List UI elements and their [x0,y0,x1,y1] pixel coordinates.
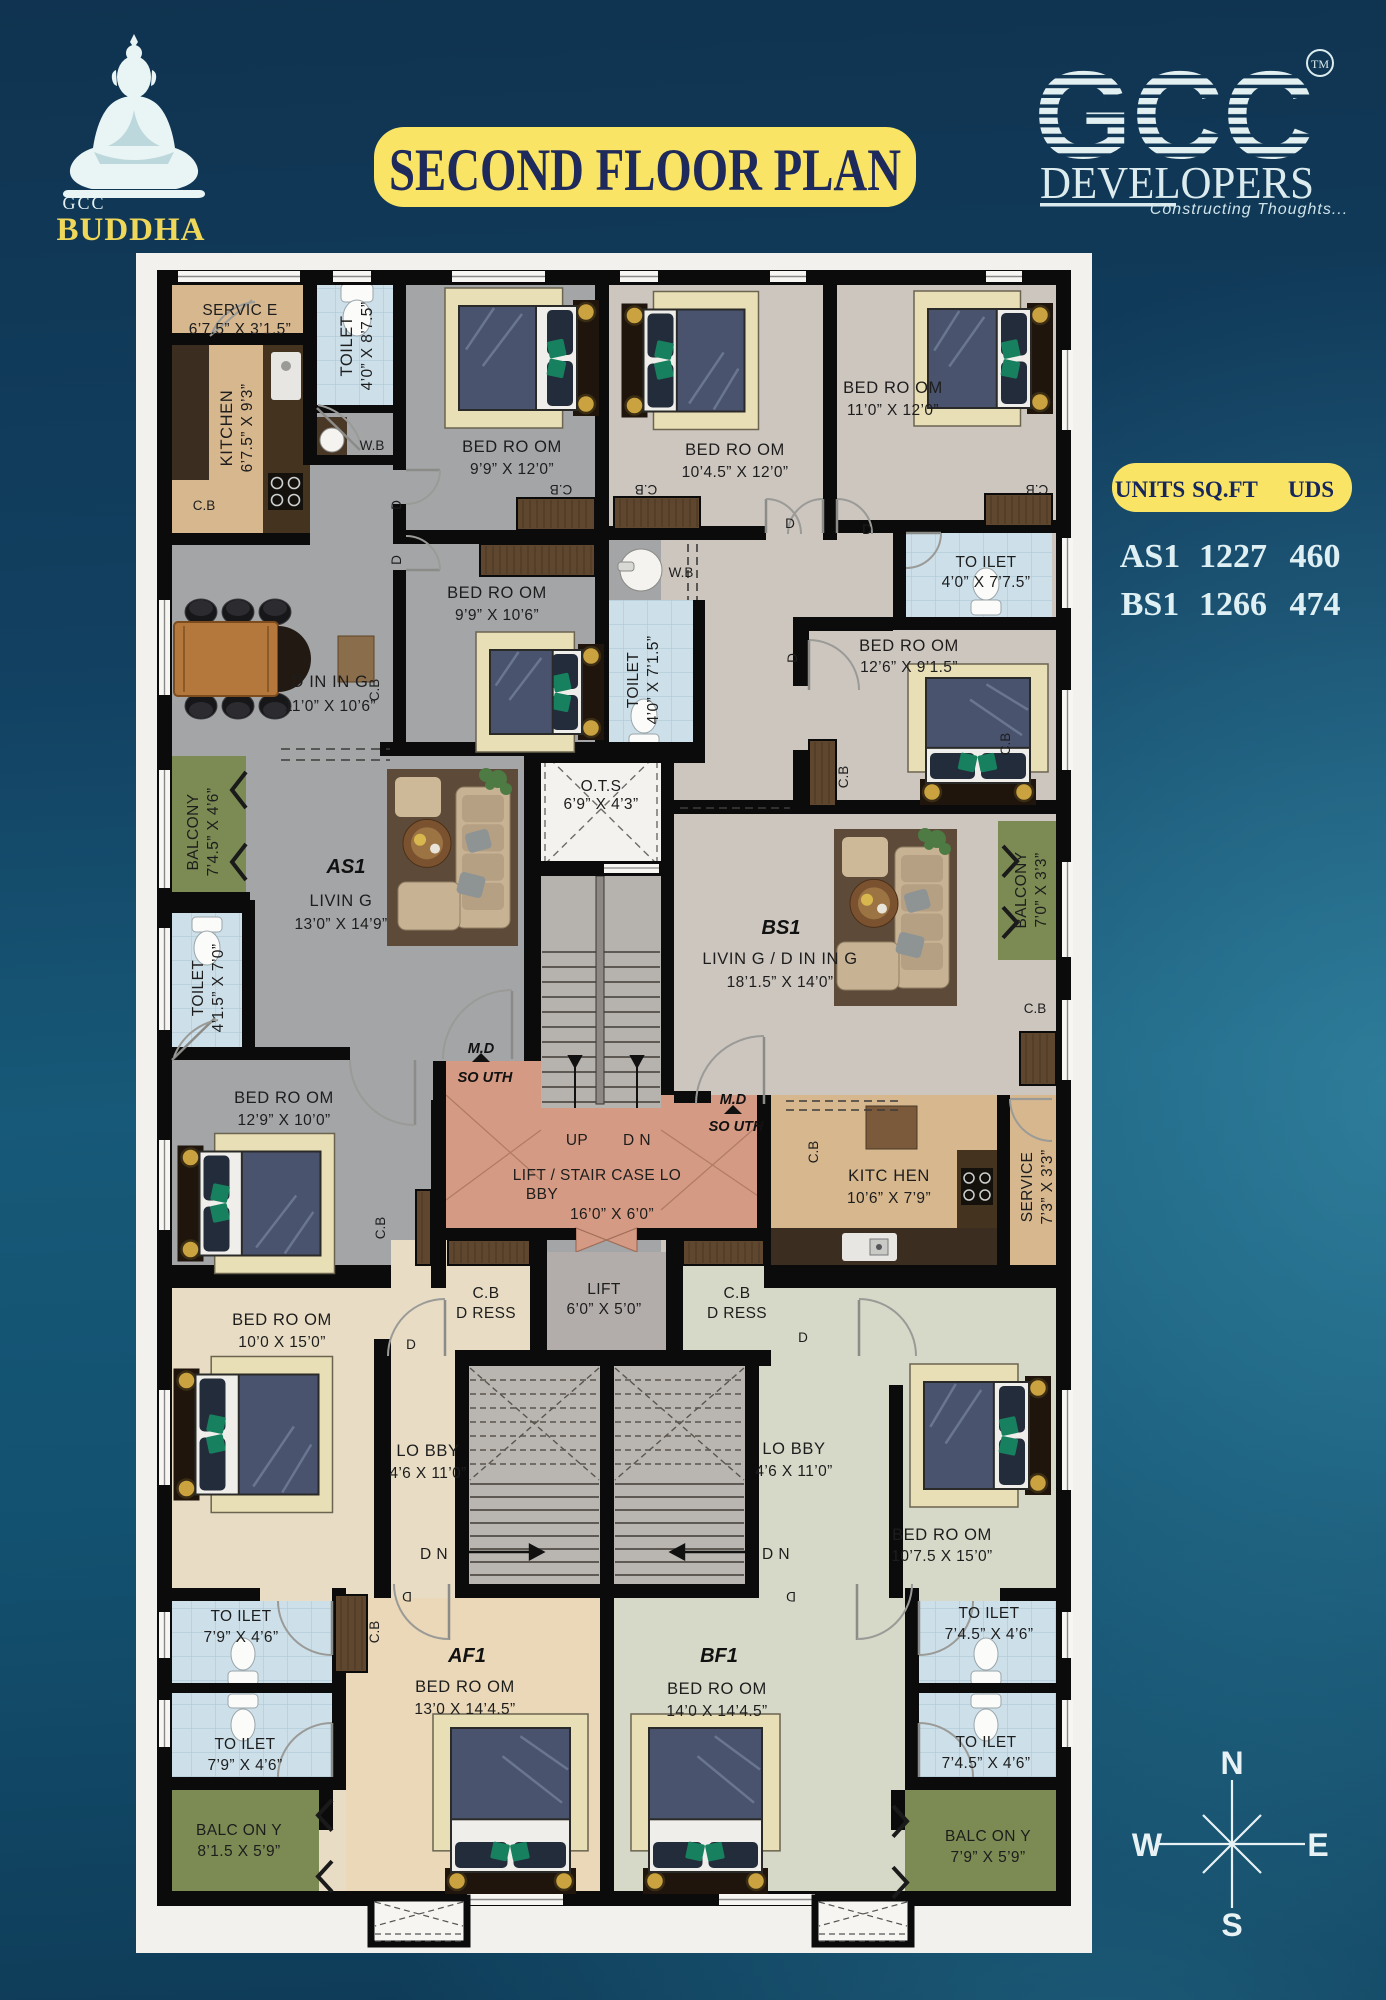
svg-text:BALCONY: BALCONY [185,794,202,871]
svg-text:D: D [389,500,404,510]
svg-text:TOILET: TOILET [625,652,642,709]
svg-text:BED RO OM: BED RO OM [232,1311,332,1329]
svg-text:LIFT: LIFT [587,1281,621,1298]
svg-text:D: D [389,555,404,565]
svg-text:BS1: BS1 [762,917,801,939]
svg-text:6’9” X 4’3”: 6’9” X 4’3” [563,796,638,813]
svg-text:W: W [1132,1827,1163,1863]
svg-text:4’6 X 11’0”: 4’6 X 11’0” [389,1465,466,1482]
svg-text:10’0 X 15’0”: 10’0 X 15’0” [238,1334,326,1351]
svg-text:Constructing Thoughts...: Constructing Thoughts... [1150,201,1348,218]
svg-text:BED RO OM: BED RO OM [859,637,959,655]
svg-text:1227: 1227 [1199,538,1267,575]
svg-text:O.T.S: O.T.S [581,778,622,795]
svg-text:BALC ON Y: BALC ON Y [945,1828,1031,1845]
svg-text:TOILET: TOILET [338,315,356,376]
svg-text:12’6” X 9’1.5”: 12’6” X 9’1.5” [860,659,958,676]
svg-text:C.B: C.B [367,1621,382,1644]
svg-text:6’7.5” X 9’3”: 6’7.5” X 9’3” [239,384,256,473]
svg-text:7’3” X 3’3”: 7’3” X 3’3” [1039,1149,1056,1224]
svg-text:C.B: C.B [723,1285,750,1302]
svg-text:7’9” X 4’6”: 7’9” X 4’6” [203,1629,278,1646]
svg-text:C.B: C.B [550,482,573,497]
svg-text:BS1: BS1 [1121,586,1180,623]
svg-text:SECOND FLOOR PLAN: SECOND FLOOR PLAN [389,137,901,203]
svg-text:10’4.5” X 12’0”: 10’4.5” X 12’0” [682,464,789,481]
svg-text:7’4.5” X 4’6”: 7’4.5” X 4’6” [945,1626,1034,1643]
svg-text:D: D [786,1589,796,1604]
svg-text:BED RO OM: BED RO OM [667,1680,767,1698]
svg-text:E: E [1307,1827,1328,1863]
svg-text:W.B: W.B [360,438,385,453]
svg-text:BED RO OM: BED RO OM [447,584,547,602]
svg-text:BF1: BF1 [700,1645,738,1667]
svg-text:LIVIN G: LIVIN G [310,892,373,910]
svg-text:BED RO OM: BED RO OM [462,438,562,456]
svg-text:7’9” X 4’6”: 7’9” X 4’6” [207,1757,282,1774]
svg-text:BALCONY: BALCONY [1013,852,1030,929]
svg-text:N: N [1220,1745,1243,1781]
svg-text:C.B: C.B [1026,482,1049,497]
svg-text:9’9” X 12’0”: 9’9” X 12’0” [470,461,554,478]
svg-text:18’1.5” X 14’0”: 18’1.5” X 14’0” [727,974,834,991]
svg-text:16’0” X 6’0”: 16’0” X 6’0” [570,1206,654,1223]
svg-text:S: S [1221,1907,1242,1943]
svg-text:C.B: C.B [193,498,216,513]
svg-text:LO BBY: LO BBY [396,1442,459,1460]
svg-text:BED RO OM: BED RO OM [892,1526,992,1544]
svg-text:TO ILET: TO ILET [955,554,1016,571]
svg-text:12’9” X 10’0”: 12’9” X 10’0” [237,1112,330,1129]
svg-text:C.B: C.B [806,1141,821,1164]
svg-text:BBY: BBY [526,1186,558,1203]
svg-text:KITC HEN: KITC HEN [848,1167,930,1185]
svg-text:1266: 1266 [1199,586,1267,623]
svg-text:BUDDHA: BUDDHA [56,212,205,248]
svg-text:AS1: AS1 [1120,538,1180,575]
svg-text:474: 474 [1290,586,1341,623]
svg-text:TOILET: TOILET [190,960,207,1017]
svg-text:7’4.5” X 4’6”: 7’4.5” X 4’6” [205,788,222,877]
svg-text:D IN IN G: D IN IN G [292,673,369,691]
svg-text:11’0” X 10’6”: 11’0” X 10’6” [284,698,376,715]
svg-text:AF1: AF1 [447,1645,486,1667]
svg-text:BED RO OM: BED RO OM [234,1089,334,1107]
svg-text:TM: TM [1311,57,1329,71]
svg-text:SERVIC E: SERVIC E [202,302,277,319]
svg-text:UNITS: UNITS [1115,477,1185,502]
svg-text:13’0 X 14’4.5”: 13’0 X 14’4.5” [414,1701,515,1718]
svg-text:C.B: C.B [998,733,1013,756]
svg-text:D: D [406,1337,416,1352]
svg-text:LO BBY: LO BBY [762,1440,825,1458]
svg-text:8’1.5 X 5’9”: 8’1.5 X 5’9” [197,1843,280,1860]
svg-text:KITCHEN: KITCHEN [218,390,236,467]
svg-text:10’6” X 7’9”: 10’6” X 7’9” [847,1190,931,1207]
svg-text:10’7.5 X 15’0”: 10’7.5 X 15’0” [891,1548,992,1565]
svg-text:AS1: AS1 [326,856,366,878]
svg-text:D RESS: D RESS [456,1305,516,1322]
svg-text:4’6 X 11’0”: 4’6 X 11’0” [755,1463,832,1480]
svg-text:UDS: UDS [1288,477,1334,502]
svg-text:D: D [862,522,872,537]
svg-text:11’0” X 12’0”: 11’0” X 12’0” [847,402,939,419]
svg-text:4’0” X 7’1.5”: 4’0” X 7’1.5” [645,636,662,725]
svg-text:SQ.FT: SQ.FT [1192,477,1258,502]
svg-text:D: D [785,653,800,663]
svg-text:D: D [402,1589,412,1604]
svg-text:D N: D N [420,1546,448,1563]
svg-text:TO ILET: TO ILET [958,1605,1019,1622]
svg-text:7’0” X 3’3”: 7’0” X 3’3” [1033,852,1050,927]
svg-text:C.B: C.B [1024,1001,1047,1016]
svg-text:GCC: GCC [62,193,105,213]
svg-text:BED RO OM: BED RO OM [685,441,785,459]
svg-text:6’0” X 5’0”: 6’0” X 5’0” [566,1301,641,1318]
svg-text:7’9” X 5’9”: 7’9” X 5’9” [950,1849,1025,1866]
svg-text:C.B: C.B [635,482,658,497]
svg-text:C.B: C.B [836,766,851,789]
svg-text:TO ILET: TO ILET [955,1734,1016,1751]
svg-text:4’0” X 7’7.5”: 4’0” X 7’7.5” [942,574,1031,591]
svg-text:9’9” X 10’6”: 9’9” X 10’6” [455,607,539,624]
svg-text:13’0” X 14’9”: 13’0” X 14’9” [294,916,387,933]
svg-text:SERVICE: SERVICE [1019,1152,1036,1223]
svg-text:SO UTH: SO UTH [709,1119,764,1135]
svg-text:4’0” X 8’7.5”: 4’0” X 8’7.5” [359,302,376,391]
svg-text:D: D [798,1330,808,1345]
svg-text:TO ILET: TO ILET [214,1736,275,1753]
svg-text:460: 460 [1290,538,1341,575]
svg-text:W.B: W.B [669,565,694,580]
svg-text:LIVIN G / D IN IN G: LIVIN G / D IN IN G [702,950,857,968]
svg-text:UP: UP [566,1132,588,1149]
svg-text:D: D [785,516,795,531]
svg-text:D RESS: D RESS [707,1305,767,1322]
svg-text:14’0 X 14’4.5”: 14’0 X 14’4.5” [666,1703,767,1720]
svg-text:7’4.5” X 4’6”: 7’4.5” X 4’6” [942,1755,1031,1772]
svg-text:TO ILET: TO ILET [210,1608,271,1625]
svg-text:D N: D N [623,1132,651,1149]
svg-text:BED RO OM: BED RO OM [415,1678,515,1696]
svg-text:BED RO OM: BED RO OM [843,379,943,397]
svg-text:6’7.5” X 3’1.5”: 6’7.5” X 3’1.5” [189,321,292,338]
svg-text:SO UTH: SO UTH [458,1070,513,1086]
svg-text:BALC ON Y: BALC ON Y [196,1822,282,1839]
svg-text:LIFT / STAIR CASE LO: LIFT / STAIR CASE LO [513,1167,682,1184]
svg-text:D N: D N [762,1546,790,1563]
svg-text:C.B: C.B [472,1285,499,1302]
svg-text:4’1.5” X 7’0”: 4’1.5” X 7’0” [210,944,227,1033]
svg-text:C.B: C.B [373,1217,388,1240]
